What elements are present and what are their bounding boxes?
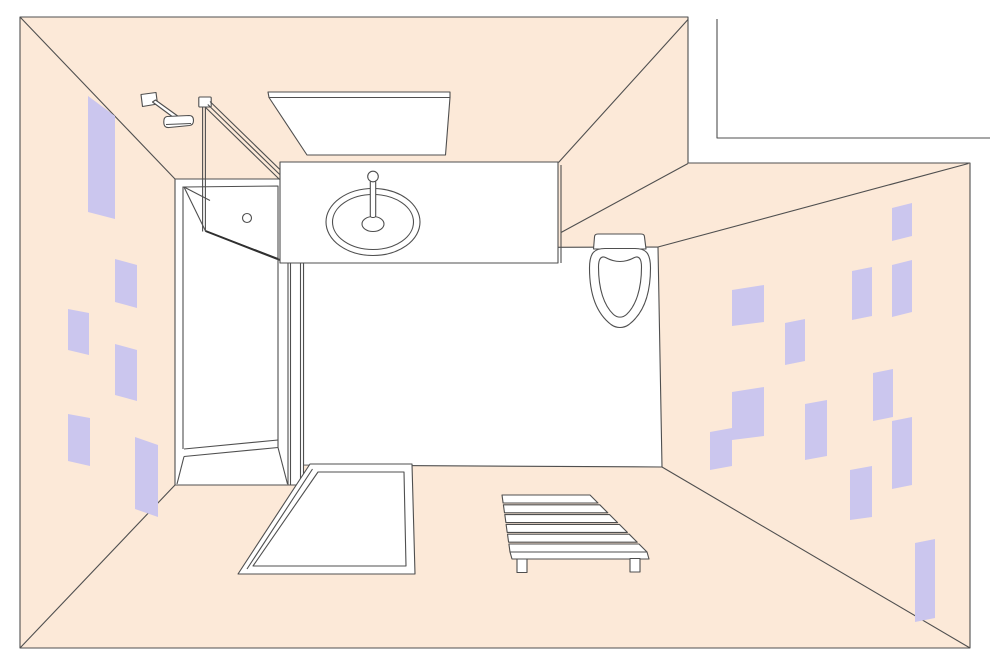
- bench-slat: [506, 524, 627, 532]
- bathroom-top-view-drawing: [0, 0, 990, 668]
- right-wall-tile: [732, 387, 764, 440]
- right-wall-tile: [873, 369, 893, 421]
- bench-leg-left: [517, 559, 527, 573]
- right-wall-tile: [805, 400, 827, 460]
- right-wall-tile: [852, 267, 872, 320]
- right-wall-tile: [892, 203, 912, 241]
- left-wall-tile: [115, 259, 137, 308]
- right-wall-tile: [710, 428, 732, 470]
- shapes-layer: [20, 17, 990, 648]
- left-wall-tile: [135, 437, 158, 517]
- bench-slat: [509, 544, 647, 552]
- left-wall-tile: [68, 414, 90, 466]
- bench-slat: [503, 505, 607, 513]
- sink-faucet-knob: [368, 171, 379, 182]
- left-wall-tile: [115, 344, 137, 401]
- right-wall-tile: [850, 466, 872, 520]
- bench-slat: [502, 495, 598, 503]
- right-wall-tile: [785, 319, 805, 365]
- left-wall-tile: [68, 309, 89, 355]
- right-wall-tile: [732, 285, 764, 326]
- sink-faucet-stem: [370, 180, 375, 218]
- toilet-tank: [594, 234, 647, 249]
- bench-slat: [508, 534, 638, 542]
- sink-counter: [280, 162, 558, 263]
- shower-door-handle: [243, 214, 252, 223]
- ceiling-light-edge: [268, 92, 450, 98]
- bathroom-plan-svg: [0, 0, 990, 668]
- adjacent-wall-line: [717, 19, 990, 138]
- bench-front-face: [510, 552, 649, 559]
- right-wall-tile: [892, 417, 912, 489]
- towel-hook-bar: [164, 116, 194, 128]
- left-wall-tile: [88, 96, 115, 219]
- right-wall-tile: [892, 260, 912, 317]
- bench-leg-right: [630, 559, 640, 573]
- bench-slat: [505, 515, 618, 523]
- right-wall-tile: [915, 539, 935, 622]
